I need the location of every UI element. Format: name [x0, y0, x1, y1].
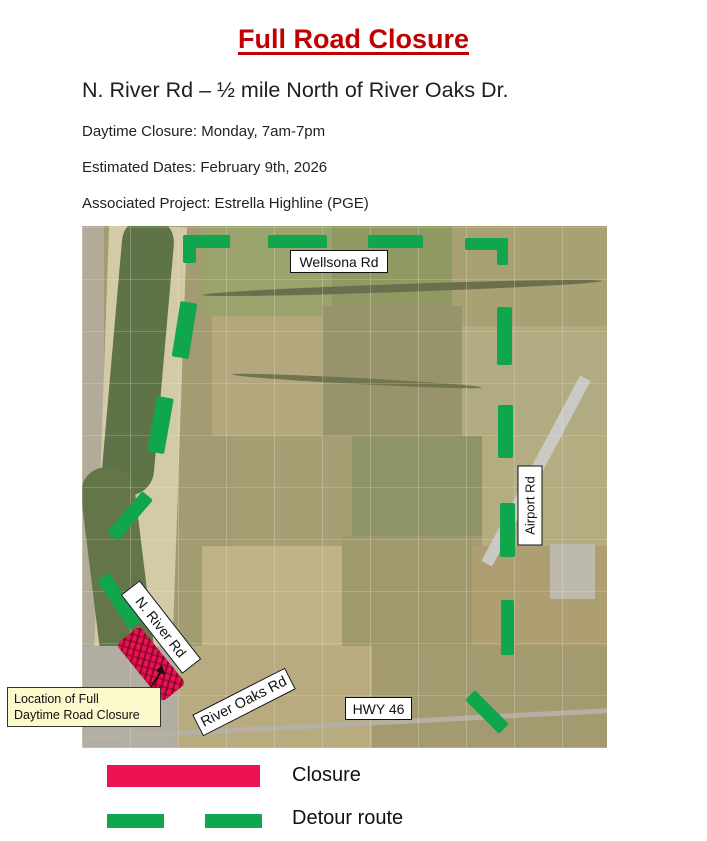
detour-dash-top-2 — [368, 235, 423, 248]
legend-detour-swatch-2 — [205, 814, 262, 828]
page-title: Full Road Closure — [0, 24, 707, 55]
detour-dash-right-4 — [501, 600, 514, 655]
map-label-hwy-46: HWY 46 — [345, 697, 412, 720]
closure-time-text: Daytime Closure: Monday, 7am-7pm — [82, 123, 325, 140]
legend-closure-label: Closure — [292, 764, 361, 787]
detour-dash-right-1 — [497, 307, 512, 365]
detour-dash-right-2 — [498, 405, 513, 458]
callout-line-1: Location of Full — [14, 691, 154, 707]
detour-dash-top-left-corner-v — [183, 235, 196, 263]
detour-dash-top-right-corner-v — [497, 238, 508, 265]
callout-line-2: Daytime Road Closure — [14, 707, 154, 723]
legend-closure-swatch — [107, 765, 260, 787]
legend-detour-swatch-1 — [107, 814, 164, 828]
map-label-wellsona-rd: Wellsona Rd — [290, 250, 388, 273]
legend-detour-label: Detour route — [292, 807, 403, 830]
closure-dates-text: Estimated Dates: February 9th, 2026 — [82, 159, 327, 176]
detour-dash-right-3 — [500, 503, 515, 557]
detour-dash-top-1 — [268, 235, 327, 248]
closure-location-callout: Location of Full Daytime Road Closure — [7, 687, 161, 727]
closure-location-heading: N. River Rd – ½ mile North of River Oaks… — [82, 78, 509, 103]
associated-project-text: Associated Project: Estrella Highline (P… — [82, 195, 369, 212]
map-label-airport-rd: Airport Rd — [518, 466, 543, 546]
